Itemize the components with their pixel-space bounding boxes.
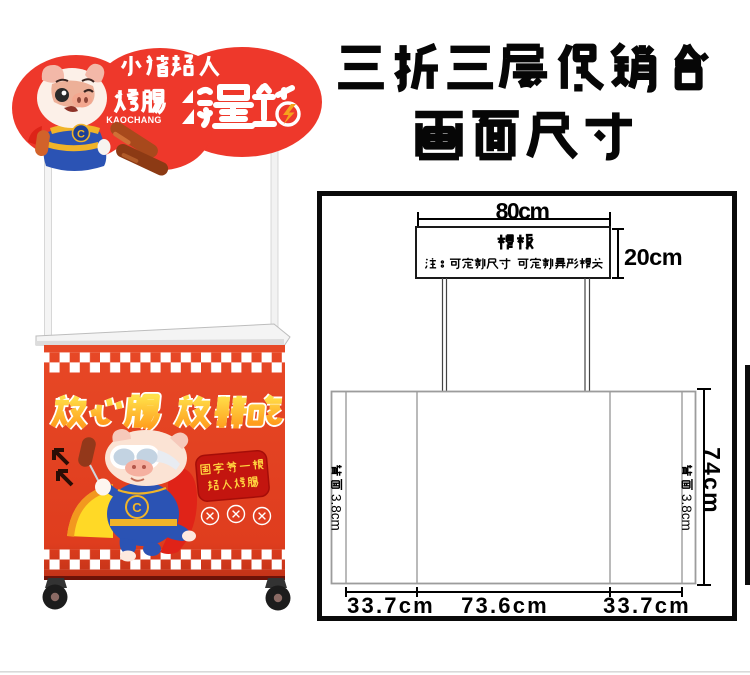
svg-text:33.7cm: 33.7cm: [347, 593, 435, 618]
svg-text:80cm: 80cm: [496, 198, 550, 224]
svg-text:C: C: [77, 129, 85, 141]
svg-text:C: C: [132, 500, 142, 515]
svg-text:3.8cm: 3.8cm: [679, 494, 694, 531]
svg-text:20cm: 20cm: [624, 244, 682, 270]
svg-text:73.6cm: 73.6cm: [461, 593, 549, 618]
svg-text:74cm: 74cm: [699, 447, 725, 515]
svg-text:33.7cm: 33.7cm: [603, 593, 691, 618]
svg-text:3.8cm: 3.8cm: [329, 494, 344, 531]
